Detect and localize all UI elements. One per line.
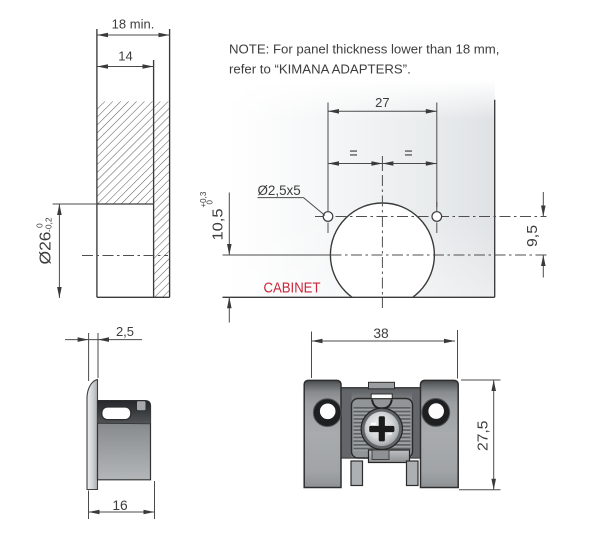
- svg-text:-0,2: -0,2: [44, 217, 54, 232]
- svg-text:14: 14: [118, 49, 132, 64]
- svg-text:9,5: 9,5: [525, 225, 541, 247]
- svg-text:38: 38: [373, 326, 389, 341]
- svg-text:CABINET: CABINET: [264, 281, 321, 297]
- svg-text:18 min.: 18 min.: [112, 17, 155, 32]
- svg-text:Ø2,5x5: Ø2,5x5: [258, 183, 301, 198]
- svg-text:Ø26: Ø26: [38, 232, 55, 265]
- svg-text:refer to “KIMANA ADAPTERS”.: refer to “KIMANA ADAPTERS”.: [229, 62, 411, 77]
- svg-text:2,5: 2,5: [116, 324, 134, 339]
- svg-text:27,5: 27,5: [476, 421, 492, 452]
- svg-text:27: 27: [375, 95, 389, 110]
- svg-text:=: =: [349, 146, 357, 162]
- svg-text:=: =: [404, 146, 412, 162]
- svg-text:16: 16: [112, 498, 128, 513]
- svg-text:NOTE: For panel thickness lowe: NOTE: For panel thickness lower than 18 …: [229, 42, 499, 57]
- svg-text:10,5: 10,5: [210, 209, 227, 241]
- svg-text:0: 0: [206, 200, 215, 205]
